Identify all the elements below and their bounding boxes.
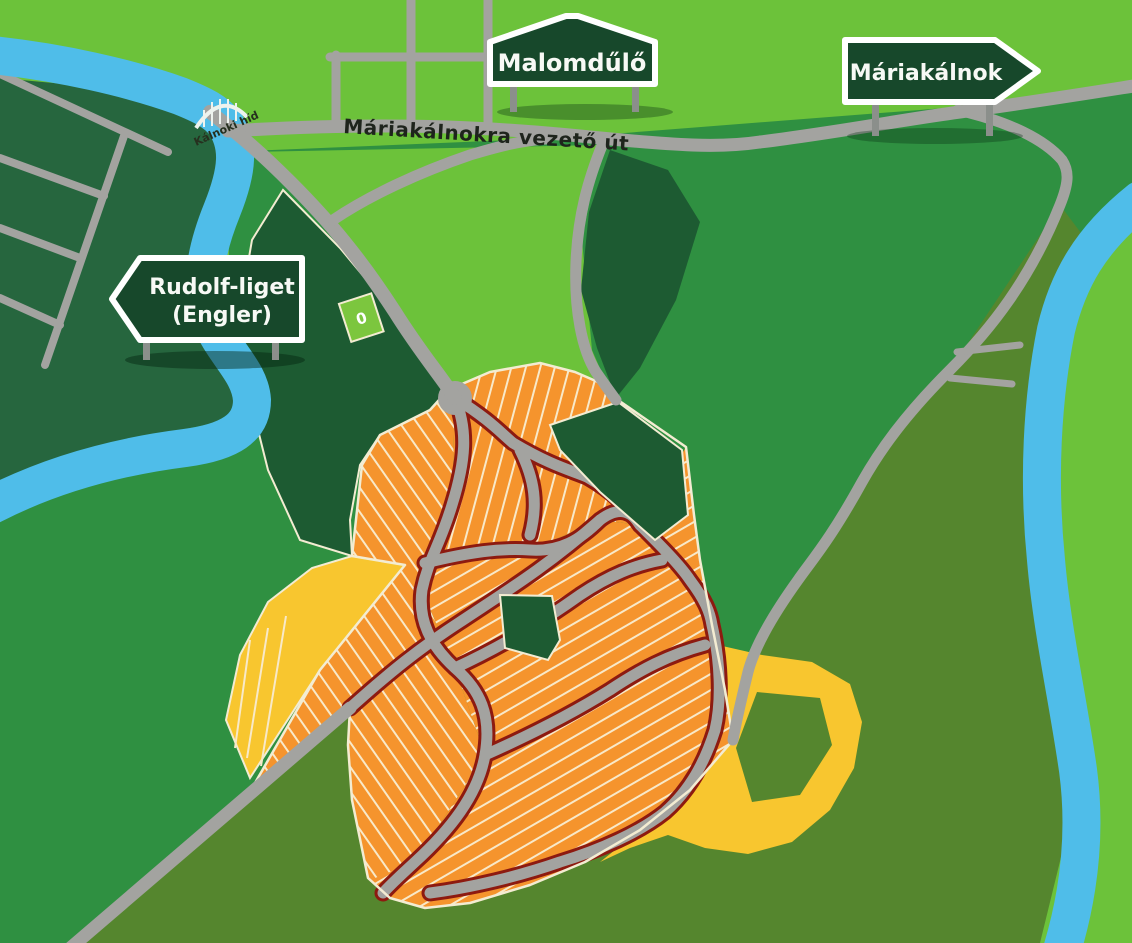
sign-malomdulo-shadow xyxy=(497,104,673,120)
sign-mariakalnok-post-left xyxy=(872,100,879,136)
sign-mariakalnok-label: Máriakálnok xyxy=(850,61,1004,86)
sign-rudolf-label-line1: Rudolf-liget xyxy=(149,275,295,300)
illustrated-map: Kálnoki híd Máriakálnokra vezető út 0 Ma… xyxy=(0,0,1132,943)
sign-malomdulo-label: Malomdűlő xyxy=(498,49,647,77)
sign-mariakalnok-post-right xyxy=(986,100,993,136)
map-canvas: Kálnoki híd Máriakálnokra vezető út 0 Ma… xyxy=(0,0,1132,943)
sign-rudolf-label-line2: (Engler) xyxy=(172,303,272,328)
